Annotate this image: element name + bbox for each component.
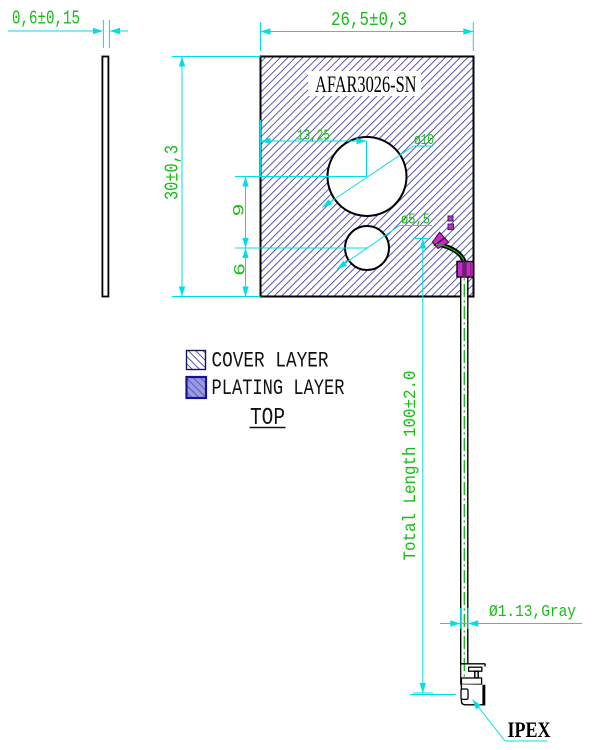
svg-text:AFAR3026-SN: AFAR3026-SN	[315, 72, 417, 97]
svg-text:Total Length 100±2.0: Total Length 100±2.0	[401, 371, 421, 561]
svg-text:9: 9	[231, 204, 249, 217]
svg-text:13,25: 13,25	[297, 129, 330, 145]
svg-text:26,5±0,3: 26,5±0,3	[331, 9, 407, 31]
svg-text:IPEX: IPEX	[508, 717, 551, 742]
svg-text:0,6±0,15: 0,6±0,15	[12, 8, 80, 30]
svg-text:ø10: ø10	[414, 133, 434, 149]
svg-text:PLATING LAYER: PLATING LAYER	[212, 376, 345, 401]
svg-text:6: 6	[232, 263, 250, 276]
svg-text:ø5,5: ø5,5	[401, 212, 430, 229]
svg-text:Ø1.13,Gray: Ø1.13,Gray	[489, 603, 576, 622]
svg-text:30±0,3: 30±0,3	[162, 145, 184, 200]
svg-text:COVER LAYER: COVER LAYER	[212, 349, 329, 374]
